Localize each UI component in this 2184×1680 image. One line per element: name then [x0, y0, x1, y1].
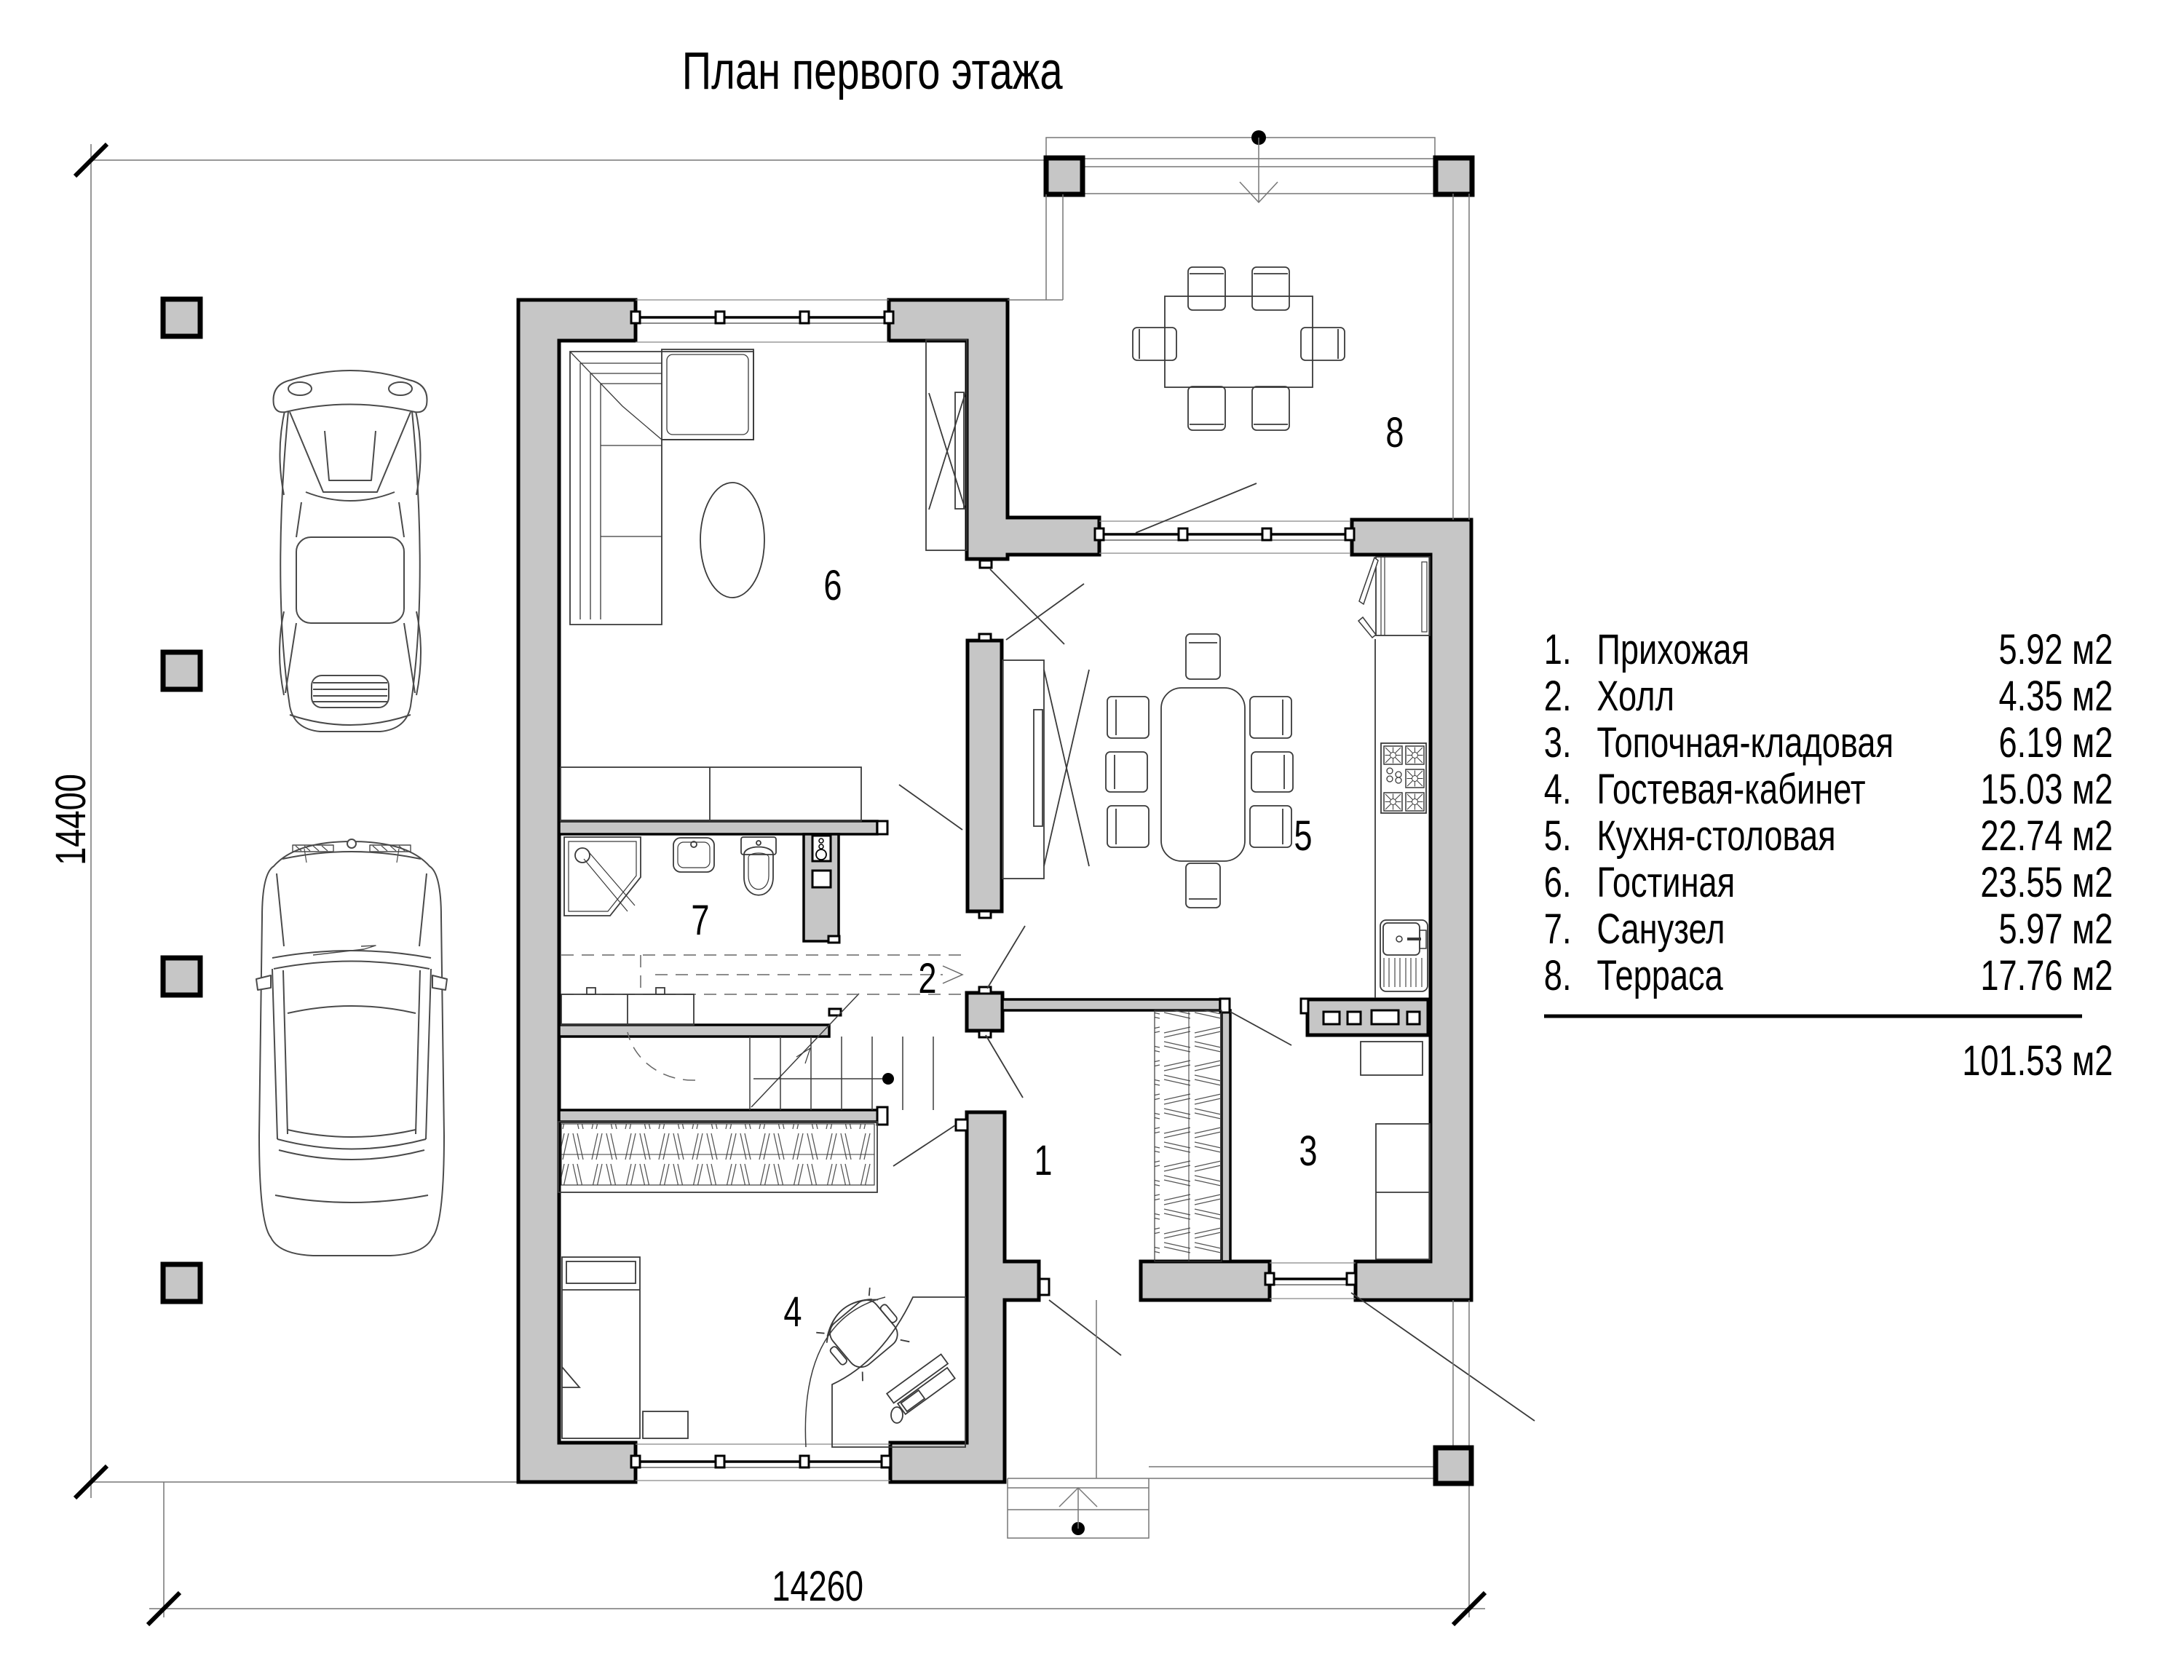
svg-text:2: 2 — [918, 956, 936, 1003]
svg-text:5.92 м2: 5.92 м2 — [1999, 627, 2113, 674]
svg-text:Гостиная: Гостиная — [1597, 860, 1735, 907]
svg-text:4.35 м2: 4.35 м2 — [1999, 673, 2113, 721]
svg-text:7.: 7. — [1544, 906, 1572, 954]
svg-text:1.: 1. — [1544, 627, 1572, 674]
svg-text:23.55 м2: 23.55 м2 — [1980, 860, 2113, 907]
svg-text:22.74 м2: 22.74 м2 — [1980, 813, 2113, 860]
svg-text:5.97 м2: 5.97 м2 — [1999, 906, 2113, 954]
svg-text:3: 3 — [1299, 1128, 1317, 1176]
svg-text:8.: 8. — [1544, 953, 1572, 1000]
svg-text:3.: 3. — [1544, 720, 1572, 767]
svg-text:4: 4 — [783, 1289, 802, 1336]
svg-text:101.53 м2: 101.53 м2 — [1962, 1038, 2113, 1085]
svg-text:Холл: Холл — [1597, 673, 1674, 721]
svg-text:Терраса: Терраса — [1597, 953, 1723, 1000]
svg-text:17.76 м2: 17.76 м2 — [1980, 953, 2113, 1000]
svg-text:8: 8 — [1385, 410, 1404, 457]
svg-text:5.: 5. — [1544, 813, 1572, 860]
svg-text:Прихожая: Прихожая — [1597, 627, 1749, 674]
svg-text:7: 7 — [691, 898, 709, 945]
svg-text:15.03 м2: 15.03 м2 — [1980, 766, 2113, 814]
svg-text:6: 6 — [823, 563, 842, 610]
svg-text:6.19 м2: 6.19 м2 — [1999, 720, 2113, 767]
svg-text:1: 1 — [1034, 1138, 1052, 1185]
svg-text:Топочная-кладовая: Топочная-кладовая — [1597, 720, 1894, 767]
svg-text:2.: 2. — [1544, 673, 1572, 721]
svg-text:14260: 14260 — [772, 1564, 863, 1611]
svg-text:План первого этажа: План первого этажа — [682, 41, 1063, 100]
svg-text:Санузел: Санузел — [1597, 906, 1725, 954]
svg-text:5: 5 — [1294, 813, 1312, 860]
svg-text:4.: 4. — [1544, 766, 1572, 814]
svg-text:6.: 6. — [1544, 860, 1572, 907]
svg-text:14400: 14400 — [48, 774, 95, 865]
svg-text:Гостевая-кабинет: Гостевая-кабинет — [1597, 766, 1865, 814]
svg-text:Кухня-столовая: Кухня-столовая — [1597, 813, 1835, 860]
